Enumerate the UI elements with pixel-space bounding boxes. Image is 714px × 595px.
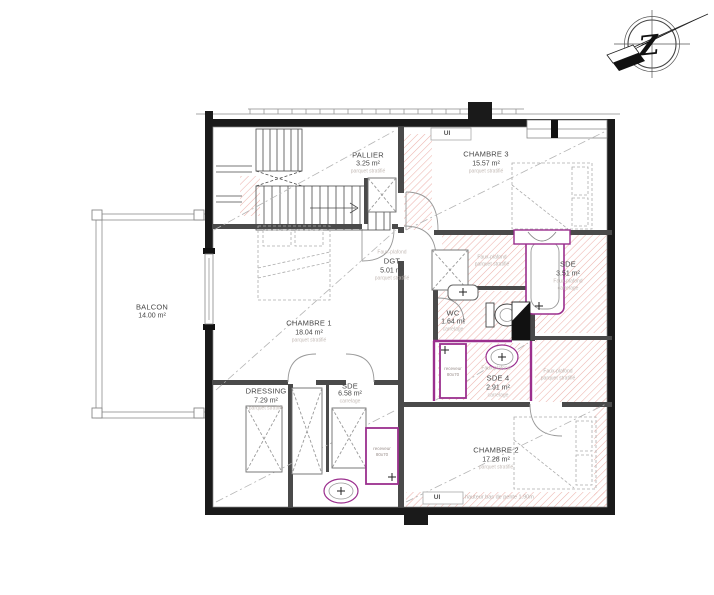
room-label-pallier-name: PALLIER [352,151,384,159]
shower-label-sde4-2: 80x70 [447,373,459,378]
room-label-sde-bas-material: carrelage [340,400,361,405]
room-label-sde-bain-area: 3.51 m² [556,271,580,278]
room-label-chambre3-material: parquet stratifié [469,170,503,175]
room-label-chambre1-material: parquet stratifié [292,339,326,344]
balcony-door [203,248,215,330]
room-label-sde-bain-material: carrelage [558,287,579,292]
room-label-sde-bain-name: SDE [560,260,576,268]
shower-label-sde-bas-2: 80x70 [376,453,388,458]
ui-box-top [431,128,471,140]
room-label-chambre2-material: parquet stratifié [479,466,513,471]
slope-height-note: hauteur bas de pente 1.90m [465,495,534,501]
shower-label-sde-bas-1: receveur [373,447,391,452]
room-label-chambre1-area: 18.04 m² [295,330,323,337]
room-label-chambre2-area: 17.28 m² [482,457,510,464]
shower-label-sde4-1: receveur [444,367,462,372]
room-label-dressing-name: DRESSING [246,387,287,395]
ui-annotation-bottom: UI [434,495,441,502]
room-label-sde4-ceiling: Faux-plafond [481,367,510,372]
room-label-sde4-name: SDE 4 [487,374,510,382]
room-label-dressing-area: 7.29 m² [254,398,278,405]
room-label-chambre2-name: CHAMBRE 2 [473,446,519,454]
ui-box-bottom [423,492,463,504]
ui-annotation-top: UI [444,131,451,138]
room-label-chambre1-name: CHAMBRE 1 [286,319,332,327]
roof-window [527,120,607,138]
room-label-chambre3-area: 15.57 m² [472,161,500,168]
room-label-balcon-area: 14.00 m² [138,313,166,320]
room-label-dgt-name: DGT [384,257,400,265]
vanity-sink-top [514,230,570,244]
room-label-dressing-material: parquet stratifié [249,407,283,412]
zone-label-fp-right-2: parquet stratifié [541,377,575,382]
room-label-dgt-material: parquet stratifié [375,277,409,282]
wc-sink [448,285,478,300]
sink-sde-bas [324,479,358,503]
floorplan-drawing [0,0,714,595]
room-label-sde-bas-name: SDE [342,382,358,390]
compass-letter: Z [638,32,660,61]
room-label-wc-area: 1.64 m² [441,319,465,326]
zone-label-fp-corridor-2: parquet stratifié [475,263,509,268]
room-label-chambre3-name: CHAMBRE 3 [463,150,509,158]
room-label-dgt-ceiling: Faux-plafond [377,251,406,256]
duct [512,302,530,340]
room-label-pallier-area: 3.25 m² [356,161,380,168]
zone-label-fp-right-1: Faux-plafond [543,370,572,375]
roof-edge-lines [196,109,620,114]
room-label-balcon-name: BALCON [136,303,168,311]
floor-plan: PALLIER 3.25 m² parquet stratifié CHAMBR… [0,0,714,595]
room-label-wc-material: carrelage [443,328,464,333]
room-label-sde-bas-area: 6.58 m² [338,391,362,398]
room-label-dgt-area: 5.01 m² [380,268,404,275]
room-label-sde4-material: carrelage [488,394,509,399]
room-label-pallier-material: parquet stratifié [351,170,385,175]
room-label-wc-name: WC [447,309,460,317]
room-label-sde-bain-ceiling: Faux-plafond [553,280,582,285]
room-label-sde4-area: 2.91 m² [486,385,510,392]
zone-label-fp-corridor-1: Faux-plafond [477,256,506,261]
